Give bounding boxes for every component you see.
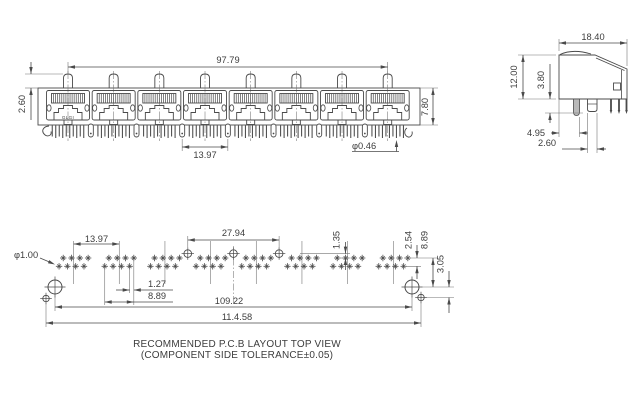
dim-port-pitch: 13.97 bbox=[193, 150, 216, 160]
dim-leg-width: 2.60 bbox=[538, 138, 556, 148]
front-view-geometry bbox=[25, 62, 438, 152]
dim-hole-diameter: φ1.00 bbox=[14, 250, 38, 260]
caption-line1: RECOMMENDED P.C.B LAYOUT TOP VIEW bbox=[133, 339, 341, 350]
pcb-layout-labels: φ1.00 13.97 27.94 1.35 2.54 8.89 3.05 1.… bbox=[14, 228, 446, 322]
dim-depth: 18.40 bbox=[581, 32, 604, 42]
dim-pin-length: 3.80 bbox=[536, 71, 546, 89]
dim-pin-stagger: 1.27 bbox=[148, 279, 166, 289]
dim-mount-hole-spacing: 109.22 bbox=[215, 296, 243, 306]
dim-overall-width: 97.79 bbox=[216, 55, 239, 65]
dim-pin-diameter: φ0.46 bbox=[352, 141, 376, 151]
technical-drawing-canvas: 97.79 2.60 7.80 13.97 φ0.46 GLGI 18.40 1… bbox=[0, 0, 642, 415]
caption: RECOMMENDED P.C.B LAYOUT TOP VIEW (COMPO… bbox=[133, 339, 341, 361]
dim-group-pitch: 13.97 bbox=[85, 234, 108, 244]
caption-line2: (COMPONENT SIDE TOLERANCE±0.05) bbox=[141, 350, 333, 361]
brand-mark: GLGI bbox=[62, 115, 74, 120]
dim-outer-pad-spacing: 11.4.58 bbox=[222, 312, 252, 322]
dim-shield-pad-offset: 1.35 bbox=[332, 231, 342, 249]
dim-peg-offset: 4.95 bbox=[527, 128, 545, 138]
dim-row-to-hole: 8.89 bbox=[420, 231, 430, 249]
dim-height: 12.00 bbox=[509, 65, 519, 88]
dim-group-span: 8.89 bbox=[148, 291, 166, 301]
dim-peg-height: 2.60 bbox=[17, 95, 27, 113]
dim-shield-pad-pitch: 27.94 bbox=[222, 228, 245, 238]
dim-body-height: 7.80 bbox=[420, 98, 430, 116]
dim-row-spacing: 2.54 bbox=[404, 231, 414, 249]
dim-hole-to-pad: 3.05 bbox=[436, 255, 446, 273]
drawing-sheet: 97.79 2.60 7.80 13.97 φ0.46 GLGI 18.40 1… bbox=[0, 0, 642, 415]
